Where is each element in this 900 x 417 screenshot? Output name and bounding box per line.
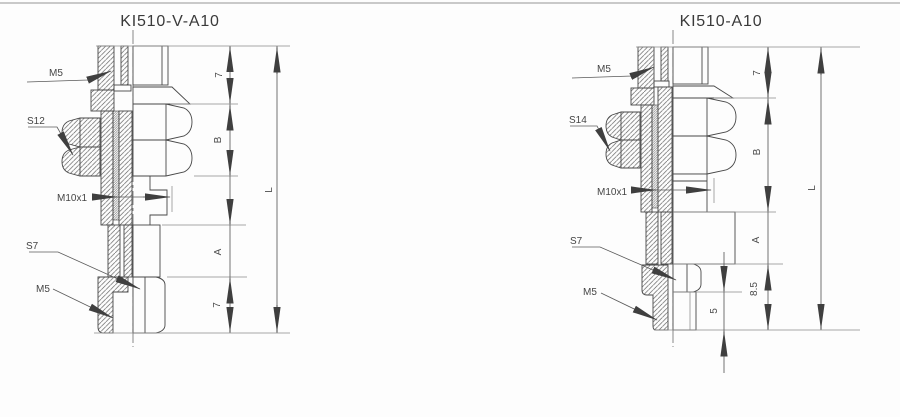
left-callout-hex-size: S12: [27, 116, 45, 127]
left-dimension-labels: 7 B A 7 L: [212, 72, 275, 308]
right-dim-top-height: 7: [752, 70, 763, 76]
right-dimension-chain: [724, 47, 821, 373]
right-hex-lower: [673, 136, 736, 174]
right-top-wall: [638, 47, 654, 88]
left-hex-chamfer: [133, 87, 190, 104]
left-thread-section: [113, 111, 119, 220]
left-callout-hex-small: S7: [26, 241, 39, 252]
right-s14-hex-lower: [606, 140, 640, 168]
right-lower-block: [673, 212, 735, 264]
right-hex-chamfer: [673, 86, 733, 98]
left-thread-step: [150, 176, 167, 225]
left-title: KI510-V-A10: [120, 13, 220, 30]
left-part-section: [62, 46, 192, 333]
right-top-cylinder: [673, 47, 708, 84]
right-dim-bottom-height: 8.5: [749, 282, 760, 296]
left-callout-thread-top: M5: [49, 68, 63, 79]
right-callout-hex-small: S7: [570, 236, 583, 247]
drawing-left: KI510-V-A10: [26, 13, 290, 347]
left-s12-hex-upper: [62, 118, 100, 147]
left-dim-upper-section: B: [213, 136, 224, 143]
technical-drawing-canvas: KI510-V-A10: [0, 0, 900, 417]
left-dim-top-height: 7: [214, 72, 225, 78]
right-top-wall-step: [631, 88, 654, 105]
left-inner-tube: [121, 46, 128, 85]
right-s14-hex-upper: [606, 112, 640, 140]
left-lower-block: [133, 225, 160, 277]
right-stem-outer: [641, 105, 652, 212]
left-lower-stem-inner: [124, 225, 132, 277]
right-thread-section: [652, 105, 658, 208]
right-ledge: [654, 81, 669, 87]
left-stem-outer: [101, 111, 113, 225]
left-lower-stem-outer: [108, 225, 120, 277]
right-hex-upper: [673, 98, 736, 136]
right-title: KI510-A10: [680, 13, 763, 30]
left-top-wall-step: [91, 90, 114, 111]
left-hex-lower: [133, 140, 192, 176]
left-top-cylinder: [133, 46, 168, 85]
left-dim-lower-section: A: [213, 248, 224, 255]
right-lower-stem-outer: [646, 212, 658, 264]
left-callout-thread-mid: M10x1: [57, 193, 87, 204]
left-dim-overall-length: L: [264, 187, 275, 193]
left-s12-hex-lower: [62, 147, 100, 176]
right-callout-thread-bottom: M5: [583, 287, 597, 298]
right-dim-upper-section: B: [752, 148, 763, 155]
left-bottom-flange: [98, 277, 128, 333]
left-stem-inner: [119, 111, 132, 225]
left-top-wall: [98, 46, 114, 90]
left-ledge: [114, 85, 131, 91]
right-callout-thread-top: M5: [597, 64, 611, 75]
left-hex-upper: [133, 104, 192, 140]
right-inner-tube: [661, 47, 668, 81]
right-callout-hex-size: S14: [569, 115, 587, 126]
right-lower-stem-inner: [661, 212, 672, 264]
right-dim-lower-section: A: [751, 236, 762, 243]
right-dim-overall-length: L: [807, 185, 818, 191]
right-thread-step: [673, 174, 707, 212]
drawing-right: KI510-A10: [569, 13, 860, 373]
right-callout-thread-mid: M10x1: [597, 187, 627, 198]
right-dim-stud-length: 5: [709, 308, 720, 314]
right-bottom-stud: [673, 292, 696, 330]
drawing-sheet: KI510-V-A10: [0, 0, 900, 417]
left-dim-bottom-height: 7: [212, 302, 223, 308]
left-callout-thread-bottom: M5: [36, 284, 50, 295]
right-stem-inner: [658, 87, 672, 212]
left-bottom-nut: [133, 277, 165, 333]
